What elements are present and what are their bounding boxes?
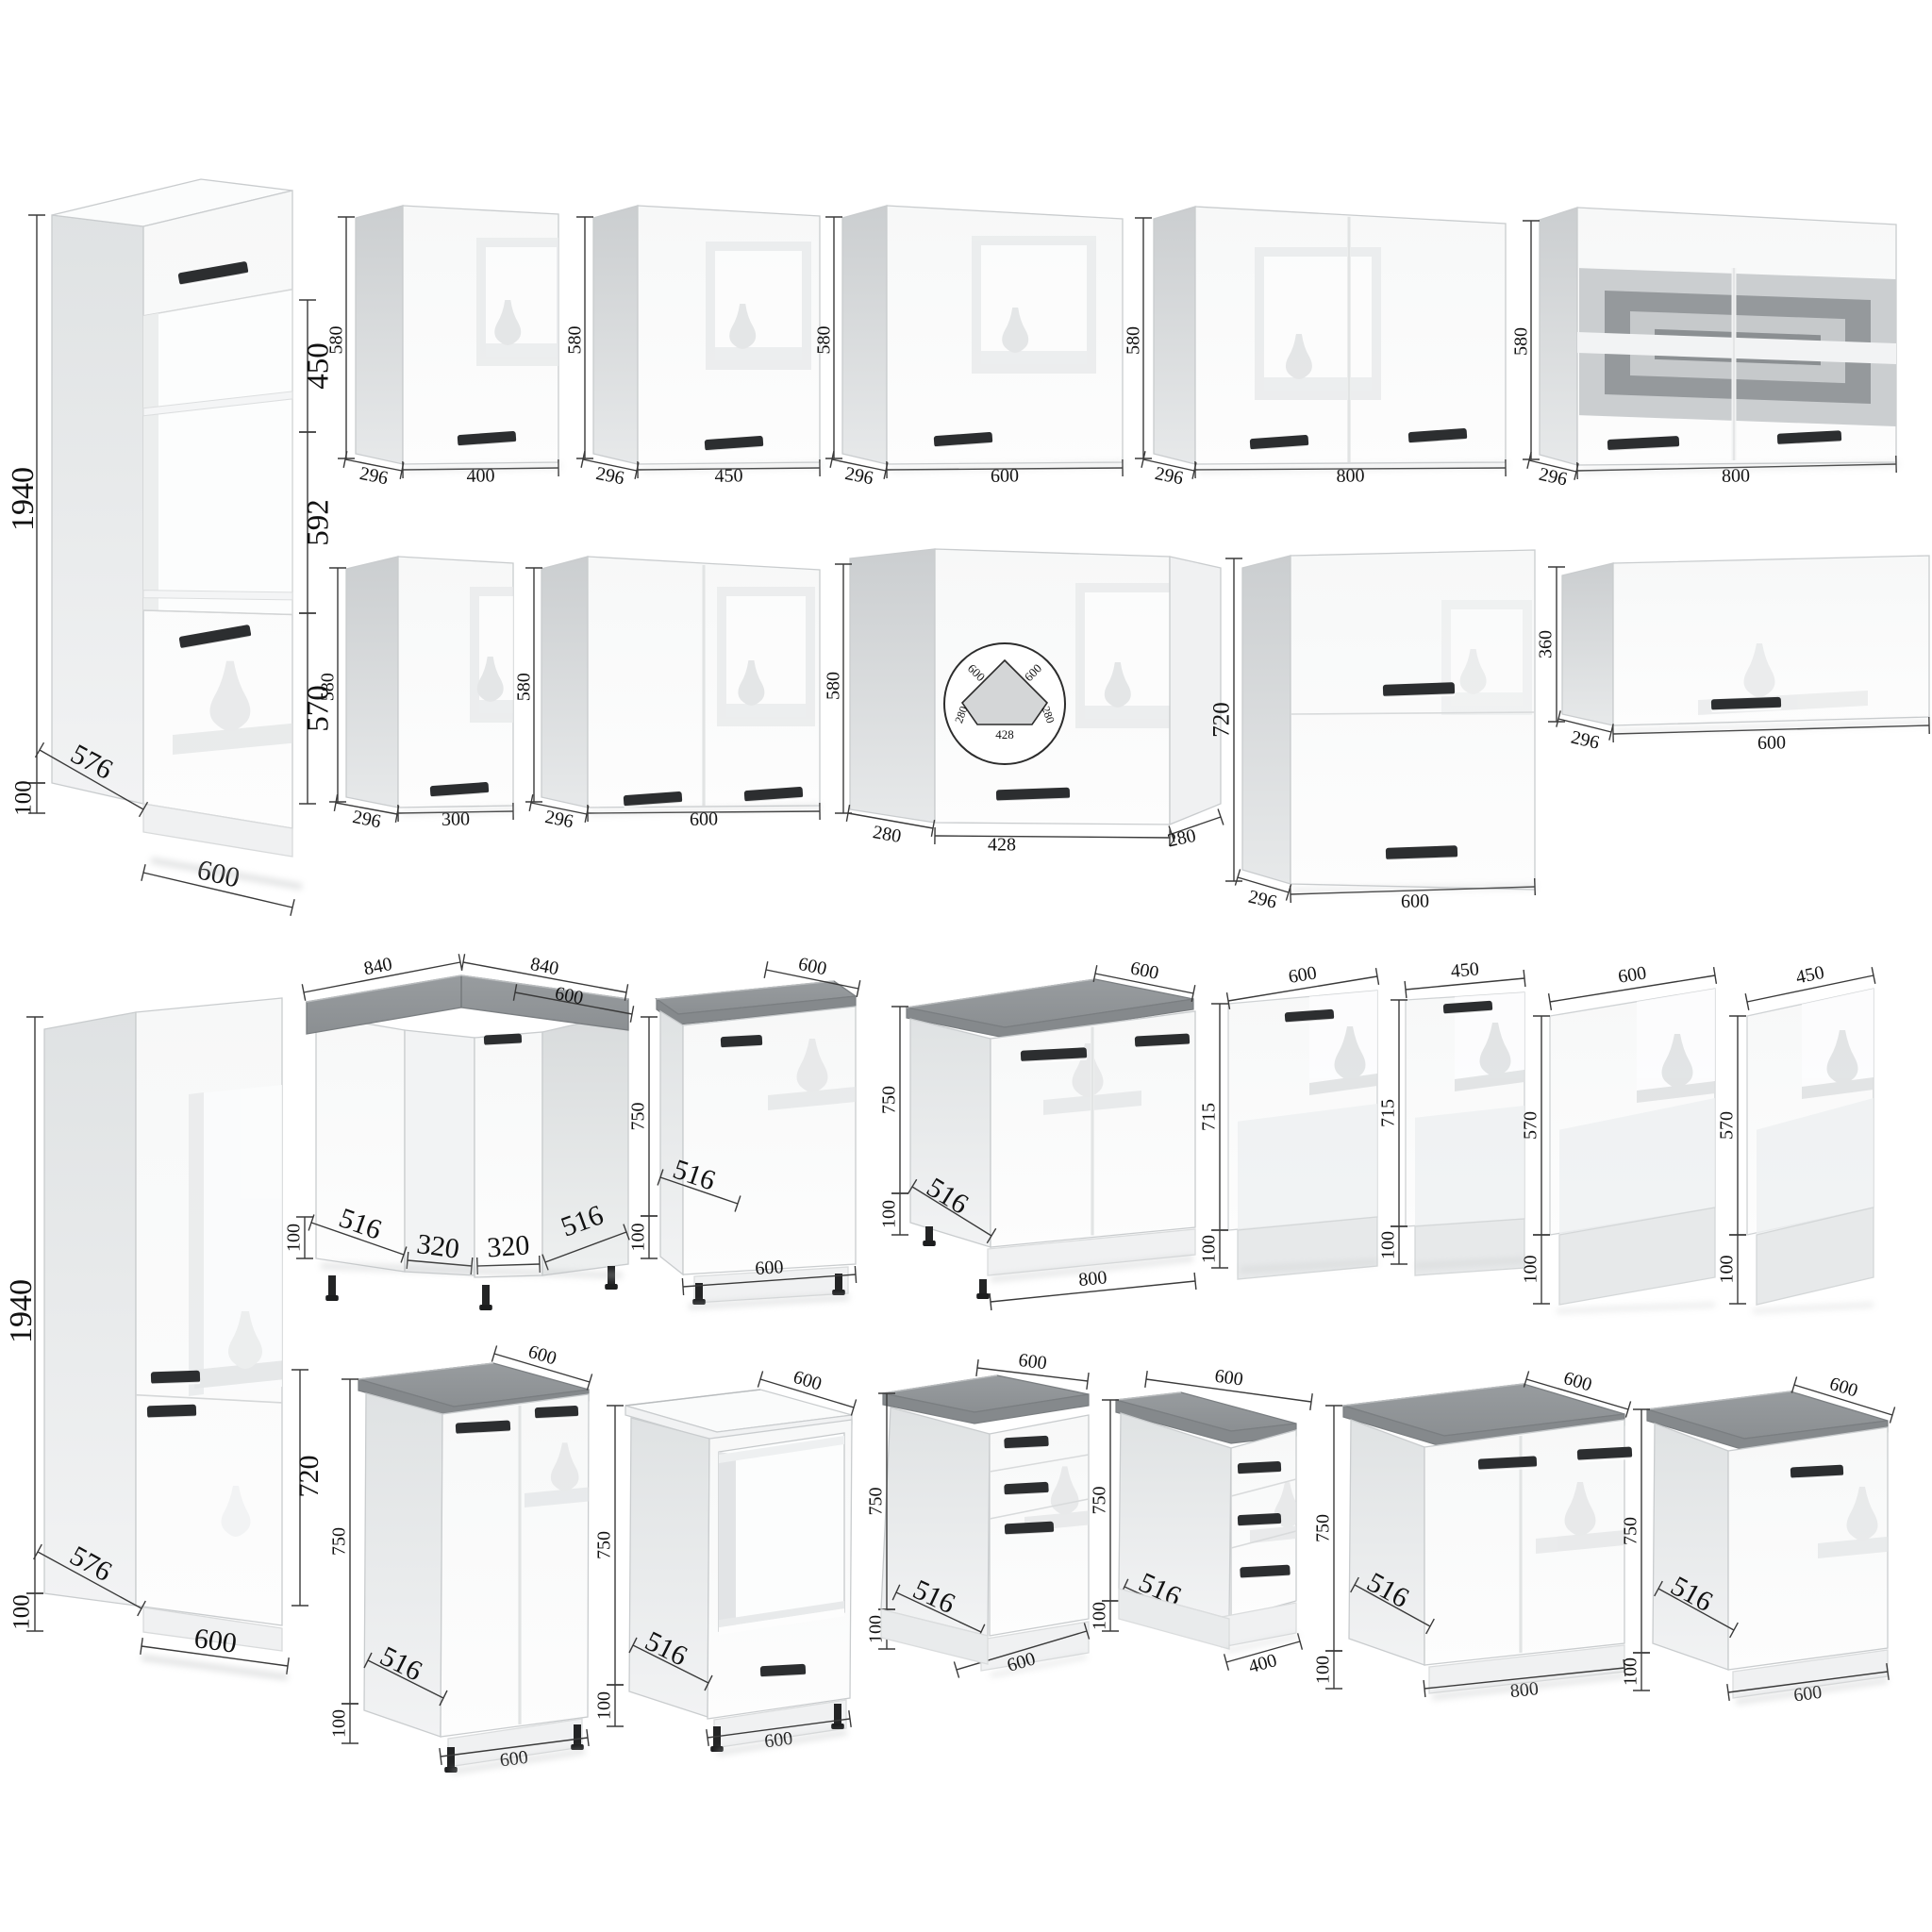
svg-text:100: 100 [1717, 1256, 1738, 1284]
svg-text:580: 580 [514, 673, 535, 701]
svg-text:100: 100 [628, 1224, 649, 1252]
svg-text:750: 750 [866, 1488, 887, 1516]
svg-text:715: 715 [1199, 1103, 1220, 1131]
svg-text:580: 580 [814, 326, 835, 355]
svg-text:750: 750 [329, 1527, 350, 1556]
svg-text:600: 600 [1401, 891, 1429, 912]
svg-text:570: 570 [1717, 1111, 1738, 1140]
svg-text:580: 580 [824, 672, 844, 700]
svg-text:580: 580 [565, 326, 586, 355]
svg-text:450: 450 [1450, 958, 1480, 982]
svg-text:100: 100 [879, 1200, 900, 1228]
svg-text:720: 720 [1209, 702, 1235, 738]
svg-text:428: 428 [995, 727, 1014, 741]
svg-text:570: 570 [1521, 1111, 1541, 1140]
svg-text:100: 100 [1378, 1231, 1399, 1259]
svg-text:320: 320 [486, 1229, 530, 1263]
svg-text:715: 715 [1378, 1099, 1399, 1127]
svg-text:100: 100 [329, 1709, 350, 1738]
svg-text:100: 100 [1313, 1656, 1334, 1684]
svg-text:750: 750 [628, 1103, 649, 1131]
svg-text:100: 100 [11, 780, 37, 816]
svg-text:600: 600 [192, 1623, 239, 1659]
svg-text:580: 580 [1124, 326, 1144, 355]
svg-text:1940: 1940 [4, 1279, 39, 1343]
svg-text:580: 580 [1511, 327, 1532, 356]
svg-text:100: 100 [284, 1224, 305, 1252]
svg-text:100: 100 [9, 1594, 35, 1630]
svg-text:100: 100 [1199, 1235, 1220, 1263]
svg-text:750: 750 [594, 1531, 615, 1559]
svg-text:100: 100 [1621, 1657, 1641, 1686]
svg-text:600: 600 [755, 1257, 784, 1279]
svg-text:600: 600 [1757, 732, 1786, 754]
svg-text:600: 600 [1617, 962, 1648, 987]
svg-text:750: 750 [879, 1086, 900, 1114]
svg-text:580: 580 [326, 326, 347, 355]
svg-text:750: 750 [1090, 1487, 1110, 1515]
svg-text:1940: 1940 [6, 467, 41, 531]
svg-text:100: 100 [594, 1691, 615, 1720]
svg-text:750: 750 [1621, 1517, 1641, 1545]
svg-text:720: 720 [293, 1456, 325, 1498]
svg-text:580: 580 [318, 673, 339, 701]
svg-text:750: 750 [1313, 1514, 1334, 1542]
svg-text:600: 600 [1017, 1350, 1047, 1374]
svg-text:360: 360 [1536, 630, 1557, 658]
svg-text:320: 320 [415, 1228, 461, 1265]
svg-text:428: 428 [988, 835, 1016, 856]
svg-text:592: 592 [302, 499, 336, 546]
svg-text:600: 600 [1213, 1366, 1244, 1391]
svg-text:100: 100 [1090, 1602, 1110, 1630]
